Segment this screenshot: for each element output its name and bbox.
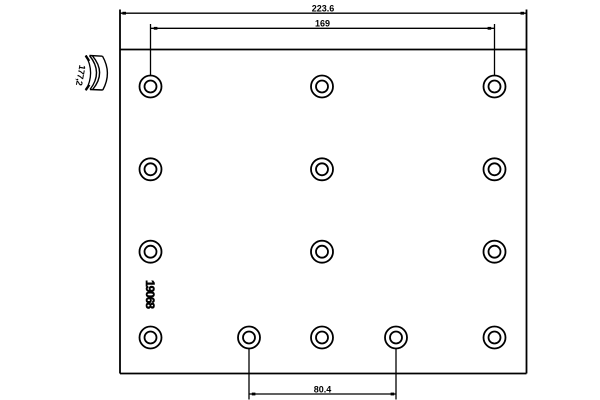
- svg-text:19068: 19068: [143, 280, 157, 309]
- svg-text:177,2: 177,2: [74, 64, 87, 86]
- svg-text:80.4: 80.4: [314, 385, 332, 395]
- svg-text:169: 169: [315, 19, 330, 29]
- svg-text:223.6: 223.6: [312, 4, 335, 14]
